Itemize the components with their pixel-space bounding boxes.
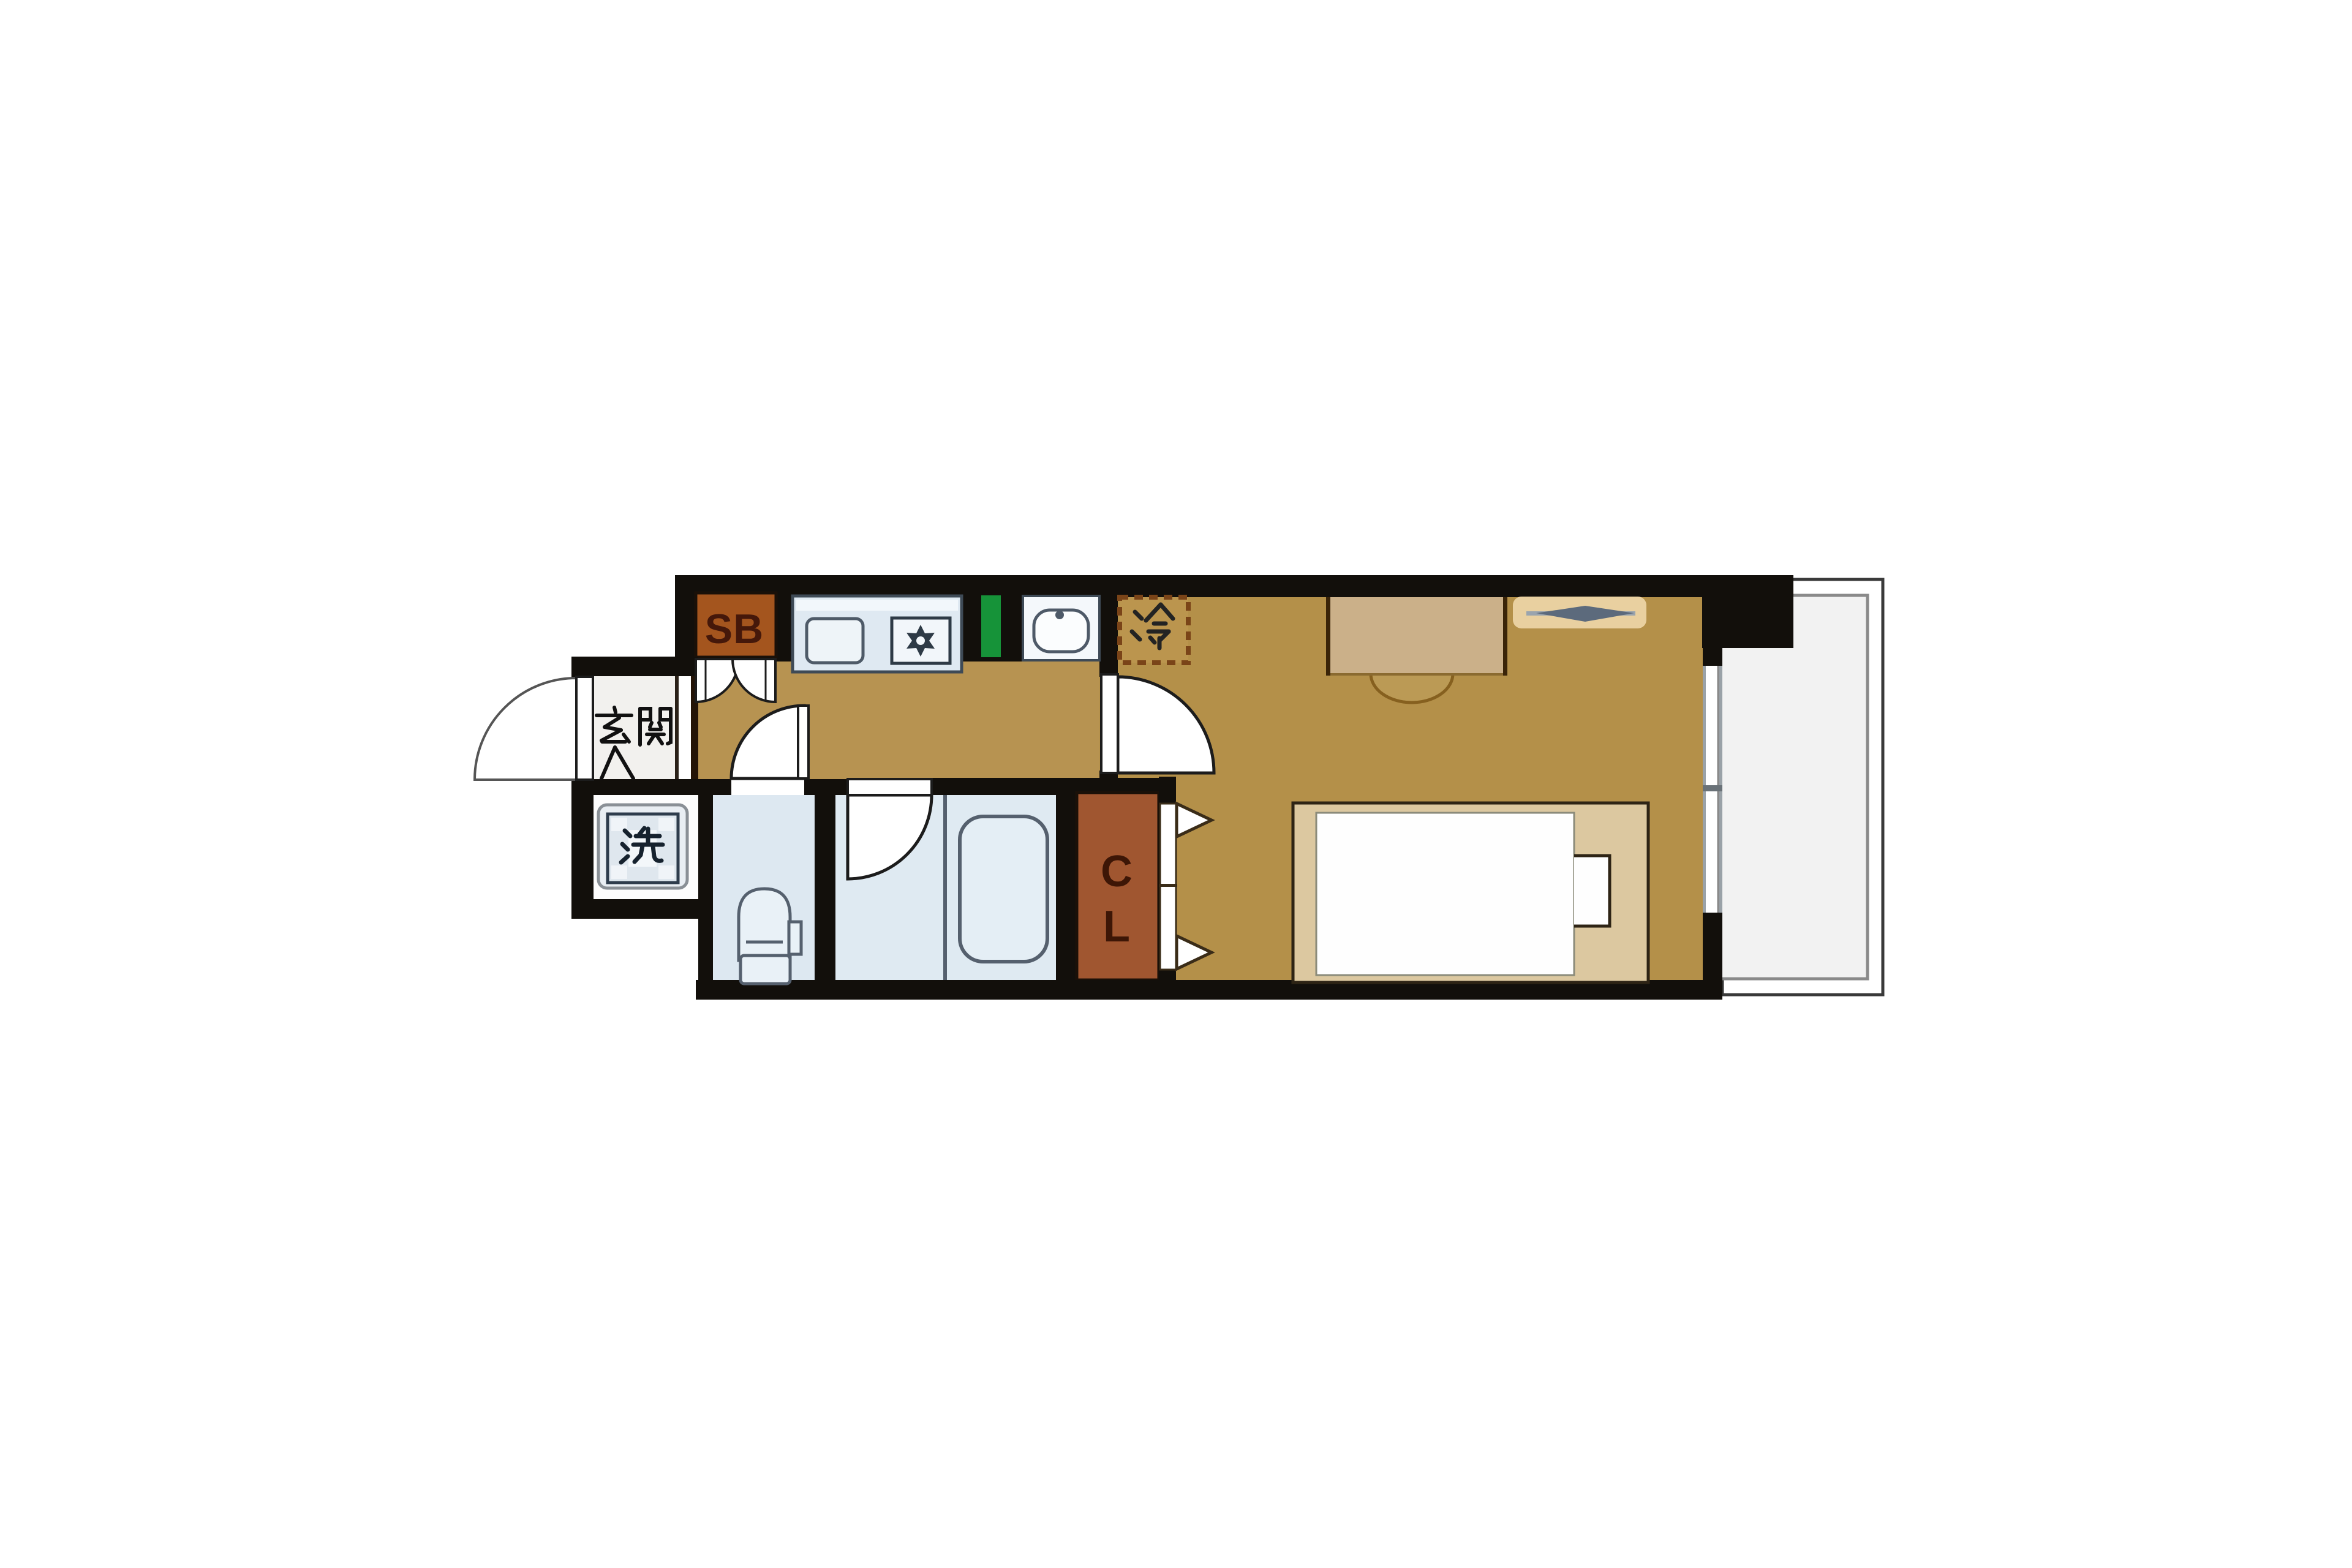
svg-text:SB: SB — [705, 606, 764, 652]
svg-text:L: L — [1103, 902, 1130, 951]
svg-text:C: C — [1101, 847, 1133, 896]
